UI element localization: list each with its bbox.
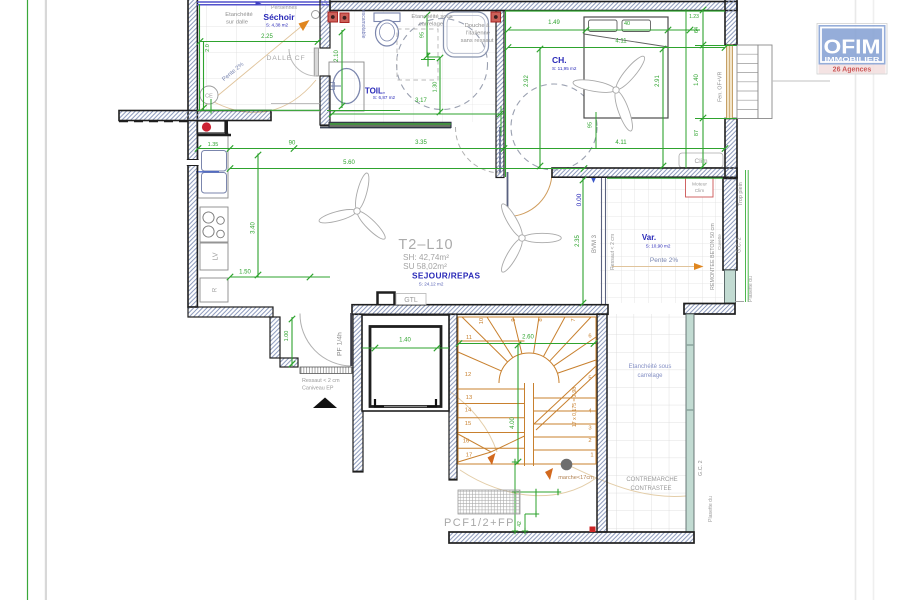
svg-text:OFIM: OFIM [824, 37, 881, 59]
svg-text:5.60: 5.60 [343, 160, 355, 166]
svg-text:3.40: 3.40 [251, 222, 257, 234]
svg-text:PCF1/2+FP: PCF1/2+FP [444, 517, 514, 529]
svg-text:Clim: Clim [695, 188, 705, 194]
svg-text:1.23: 1.23 [689, 14, 699, 20]
svg-text:carrelage: carrelage [637, 373, 663, 379]
svg-text:l'italienne: l'italienne [466, 31, 490, 37]
svg-text:90: 90 [289, 141, 296, 147]
svg-text:Trop plein: Trop plein [738, 182, 744, 206]
svg-text:CE: CE [205, 94, 213, 100]
svg-text:6: 6 [588, 334, 591, 340]
svg-text:escamotable: escamotable [360, 10, 366, 39]
svg-text:T2–L10: T2–L10 [398, 237, 453, 253]
svg-text:4.11: 4.11 [615, 39, 627, 45]
svg-text:1: 1 [590, 453, 593, 459]
svg-text:0.00: 0.00 [576, 193, 583, 206]
svg-text:1.30: 1.30 [433, 82, 439, 93]
svg-text:5: 5 [588, 376, 591, 382]
svg-text:1.49: 1.49 [548, 20, 560, 26]
svg-text:Etanchéité sous: Etanchéité sous [411, 14, 452, 20]
svg-text:3.17: 3.17 [415, 98, 427, 104]
svg-text:64: 64 [694, 27, 700, 33]
svg-text:7: 7 [571, 318, 577, 321]
svg-text:9: 9 [511, 318, 517, 321]
svg-text:2.92: 2.92 [524, 75, 530, 87]
svg-text:87: 87 [694, 130, 700, 136]
svg-text:17 x 0,175 = 2,98: 17 x 0,175 = 2,98 [572, 387, 578, 427]
svg-text:S: 6,87 m2: S: 6,87 m2 [373, 95, 396, 100]
svg-text:2.91: 2.91 [655, 75, 661, 87]
svg-text:95: 95 [588, 122, 594, 128]
svg-text:Séchoir: Séchoir [263, 12, 295, 22]
svg-text:Ressaut < 2 cm: Ressaut < 2 cm [302, 378, 340, 384]
svg-text:Ressaut < 2 cm: Ressaut < 2 cm [610, 234, 616, 270]
svg-text:S: 10,90 m2: S: 10,90 m2 [646, 244, 671, 249]
svg-text:3.35: 3.35 [415, 140, 427, 146]
svg-text:Etanchéité: Etanchéité [225, 12, 252, 18]
svg-text:40: 40 [624, 21, 630, 27]
svg-text:Fen. OF+VR: Fen. OF+VR [718, 71, 724, 102]
svg-text:CH.: CH. [552, 55, 567, 65]
svg-text:S: 11,95 m2: S: 11,95 m2 [552, 66, 577, 71]
svg-text:2.10: 2.10 [334, 50, 340, 62]
svg-text:13: 13 [466, 395, 472, 401]
svg-text:2: 2 [588, 438, 591, 444]
svg-text:S: 24,12 m2: S: 24,12 m2 [419, 282, 444, 287]
svg-text:3: 3 [588, 426, 591, 432]
svg-text:2.0: 2.0 [205, 44, 211, 52]
svg-text:42: 42 [517, 521, 523, 527]
svg-text:2.35: 2.35 [575, 235, 581, 247]
svg-text:4.11: 4.11 [615, 140, 627, 146]
svg-text:Plasette du: Plasette du [748, 276, 754, 302]
svg-text:2.25: 2.25 [261, 34, 273, 40]
svg-text:Moteur: Moteur [692, 182, 707, 188]
svg-text:17: 17 [466, 453, 472, 459]
svg-text:10: 10 [479, 318, 485, 324]
svg-text:8: 8 [538, 318, 544, 321]
svg-text:Persiennes: Persiennes [271, 5, 297, 11]
svg-text:PF 1/4h: PF 1/4h [337, 332, 344, 356]
svg-text:CONTRASTEE: CONTRASTEE [630, 486, 671, 492]
svg-text:Etanchéité sous: Etanchéité sous [629, 364, 672, 370]
svg-text:IMMOBILIER: IMMOBILIER [825, 56, 881, 63]
svg-text:14: 14 [465, 408, 472, 414]
svg-text:16: 16 [463, 439, 469, 445]
svg-text:Plasette du: Plasette du [708, 496, 714, 522]
svg-text:G.C. 2: G.C. 2 [737, 237, 743, 253]
svg-text:sans ressaut: sans ressaut [461, 38, 494, 44]
svg-text:Caniveau EP: Caniveau EP [302, 386, 334, 392]
svg-text:1.00: 1.00 [284, 331, 290, 342]
svg-text:G.C. 2: G.C. 2 [698, 460, 704, 476]
svg-text:GTL: GTL [404, 297, 418, 304]
svg-text:1.50: 1.50 [239, 270, 251, 276]
svg-text:R: R [213, 287, 219, 292]
svg-text:12: 12 [465, 372, 471, 378]
svg-text:11: 11 [466, 335, 472, 341]
svg-text:S: 4,38 m2: S: 4,38 m2 [266, 23, 289, 28]
svg-text:2.60: 2.60 [522, 335, 534, 341]
svg-text:Douche à: Douche à [465, 23, 491, 29]
svg-text:4.00: 4.00 [510, 417, 516, 429]
svg-text:26 Agences: 26 Agences [833, 67, 872, 74]
svg-text:Cuvette: Cuvette [717, 234, 722, 250]
svg-text:Pente 2%: Pente 2% [650, 257, 678, 264]
svg-text:DALLE CF: DALLE CF [267, 55, 306, 62]
svg-text:sur dalle: sur dalle [226, 20, 248, 26]
svg-text:1.35: 1.35 [208, 142, 219, 148]
svg-text:95: 95 [420, 32, 426, 38]
svg-text:SEJOUR/REPAS: SEJOUR/REPAS [412, 271, 480, 281]
svg-text:1.40: 1.40 [399, 338, 411, 344]
svg-text:Var.: Var. [642, 233, 656, 242]
svg-text:15: 15 [465, 421, 471, 427]
svg-text:REMONTEE BETON 50 cm: REMONTEE BETON 50 cm [710, 223, 716, 290]
svg-text:marche<17cm: marche<17cm [558, 475, 594, 481]
svg-text:LV: LV [213, 252, 220, 260]
svg-text:carrelage: carrelage [419, 22, 443, 28]
svg-text:SH: 42,74m²: SH: 42,74m² [403, 253, 449, 262]
svg-text:CONTREMARCHE: CONTREMARCHE [626, 477, 677, 483]
svg-text:1.40: 1.40 [694, 74, 700, 86]
svg-text:BVM 3: BVM 3 [592, 234, 598, 253]
